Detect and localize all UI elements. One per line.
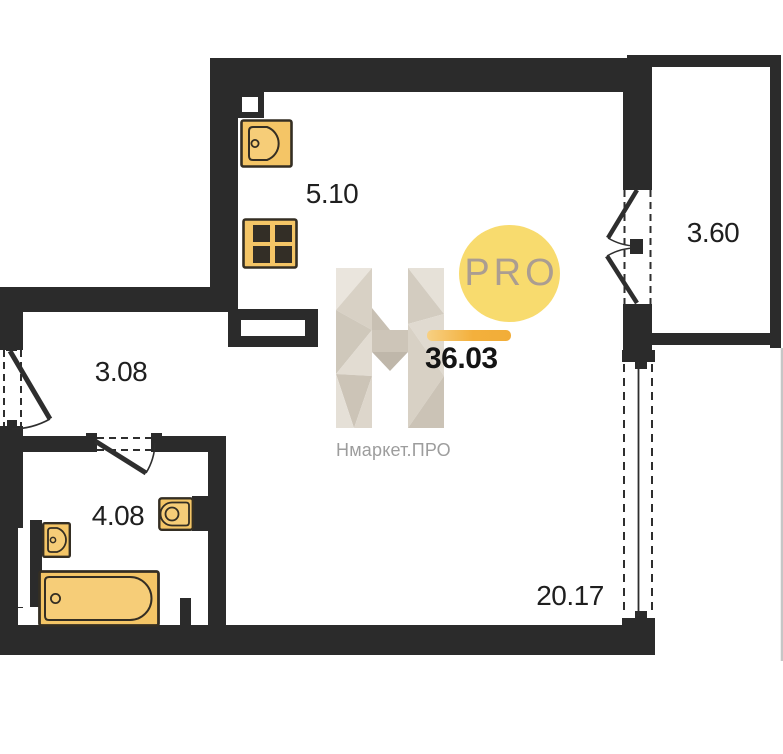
bathroom-sink-icon <box>42 522 71 558</box>
kitchen-sink-icon <box>240 119 293 168</box>
balcony-door <box>607 183 652 311</box>
total-area-label: 36.03 <box>425 342 498 376</box>
room-label-living-room: 20.17 <box>536 580 604 612</box>
bathroom-door <box>95 438 155 473</box>
stove-icon <box>242 218 298 269</box>
entry-door <box>4 343 50 429</box>
room-label-hallway: 3.08 <box>95 356 148 388</box>
living-room-window <box>622 350 655 628</box>
total-area-accent-bar <box>427 330 511 341</box>
room-label-kitchen: 5.10 <box>306 178 359 210</box>
brand-text: Нмаркет.ПРО <box>336 440 456 461</box>
pro-badge: PRO <box>459 225 560 322</box>
pro-badge-label: PRO <box>464 252 558 295</box>
toilet-icon <box>158 496 195 532</box>
room-label-balcony: 3.60 <box>687 217 740 249</box>
room-label-bathroom: 4.08 <box>92 500 145 532</box>
floor-plan: Нмаркет.ПРО PRO 5.10 3.60 3.08 4.08 20.1… <box>0 0 783 754</box>
bathtub-icon <box>38 570 160 627</box>
